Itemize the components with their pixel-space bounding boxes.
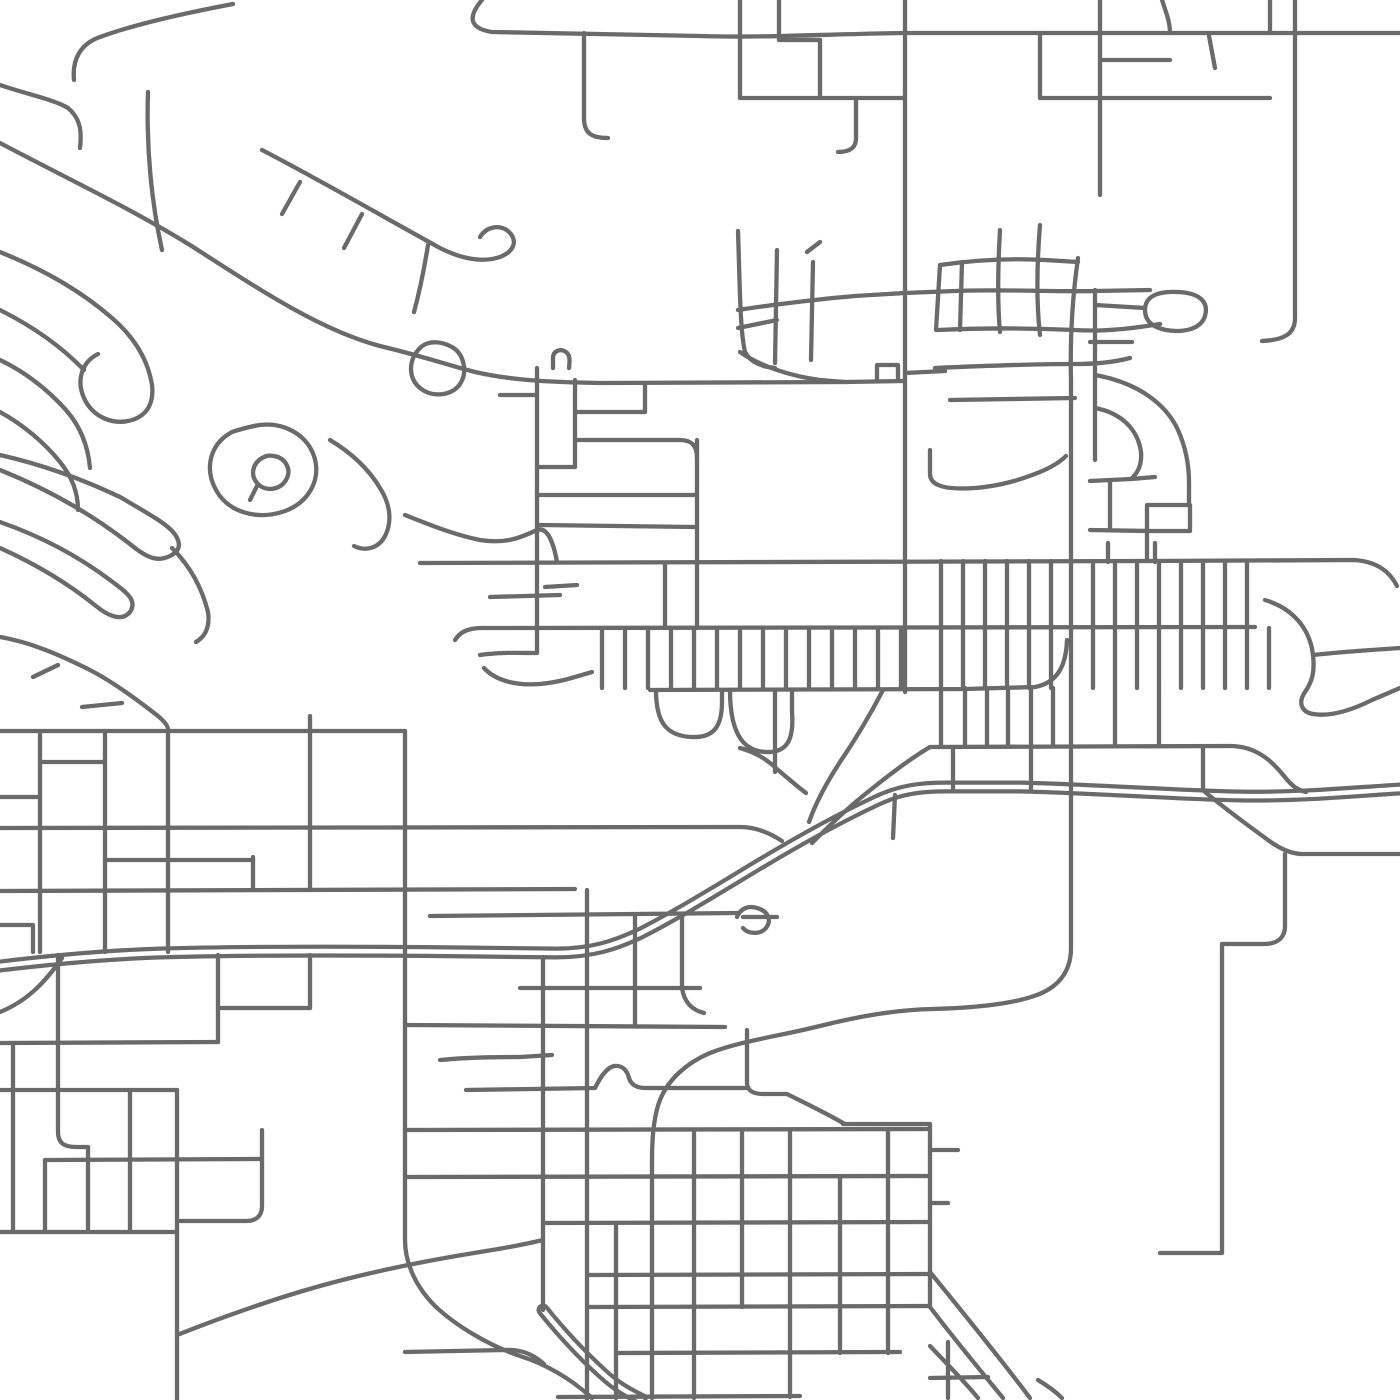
east-cluster-h3 [938,324,1160,331]
east-cluster-v1 [960,262,962,330]
h-1088 [466,1066,747,1090]
h-1130 [405,1129,930,1130]
pencil-road [172,548,209,642]
h-688 [650,640,1067,690]
v-856 [838,98,856,152]
highway-main-casing [0,787,1400,966]
h-1307 [587,1306,930,1307]
ladder-bump [553,350,570,368]
v-262 [180,1130,262,1221]
v-1162 [1162,0,1170,33]
h-1397 [558,1396,800,1397]
highway-main-core [0,787,1400,966]
se-v1285 [1222,854,1285,944]
h-1353 [616,1352,900,1353]
h-373 [905,371,945,373]
island-curve [484,668,592,684]
corner-33 [0,925,33,952]
east-cluster-h4 [935,358,1130,368]
sub-conn [414,245,428,312]
main-560 [420,560,1397,586]
fan-h [930,1377,988,1378]
cluster-stub [807,242,820,252]
cluster-h2 [738,320,777,328]
v-682 [682,915,704,1013]
hwy-loop [737,907,769,933]
east-cluster-h1 [940,259,1078,265]
h-828 [0,827,782,841]
hill-road [0,637,168,731]
v-893 [893,795,895,838]
cluster-c [811,262,813,360]
h-915 [430,913,737,916]
h-890 [0,889,575,891]
blob-road [210,424,316,515]
ladder-r595 [490,595,560,597]
diag-sw [177,1240,543,1335]
loop-nw3 [0,360,90,468]
v-1295 [1262,0,1295,341]
cluster-h1 [738,290,1150,310]
cluster-a [738,231,775,368]
hill-spur2 [82,703,122,707]
top-arterial [473,0,1400,37]
pouch-1 [656,690,722,737]
fan-3 [930,1346,978,1398]
stub-ne [1209,36,1215,68]
h-1223 [543,1222,930,1223]
v-405 [405,731,592,1398]
city-street-map [0,0,1400,1400]
hill-spur1 [33,665,58,677]
v-58 [58,955,88,1147]
h-1025 [405,1025,725,1027]
notch [877,365,898,381]
ladder-r585 [545,585,577,587]
loop-nw2 [0,310,84,370]
right-teardrop [1145,292,1206,331]
sub-tick2 [344,214,362,248]
h-1177 [405,1176,930,1177]
sub-parallel [262,150,514,260]
squiggle [330,440,389,549]
east-cluster-left [936,265,940,330]
loop-nw [0,252,152,422]
east-cluster-v3 [1037,225,1040,335]
right-link [1095,305,1145,308]
h-1043 [0,1042,218,1043]
h-653 [480,653,537,655]
sub-top [74,4,233,80]
right-arc-inner [1095,408,1141,479]
right-h530 [1090,530,1147,531]
ladder-r440 [578,440,697,458]
diag-1093 [787,1094,843,1123]
map-canvas [0,0,1400,1400]
se-v1218 [1160,944,1222,1253]
east-spur [1313,648,1400,655]
h-1057 [440,1055,552,1060]
wave-540 [405,515,557,562]
east-cluster-v2 [998,230,1000,332]
east-cluster-h5 [950,398,1075,400]
ladder-r525 [540,525,695,527]
h-1275 [587,1274,930,1275]
fan-c [1038,1380,1062,1398]
h-1160 [45,1159,262,1160]
sub-hook-left [0,85,81,148]
cluster-bottom [740,352,845,382]
loop-nw4 [0,412,78,510]
east-cluster-j [930,450,1066,488]
arrow-b [0,522,133,617]
arrow-a [0,455,179,559]
right-diag [1131,477,1155,479]
east-arc [1265,600,1400,715]
teardrop-small [250,456,288,500]
sub-tick1 [282,182,300,214]
v-584 [584,33,608,138]
pouch-2 [730,690,792,752]
